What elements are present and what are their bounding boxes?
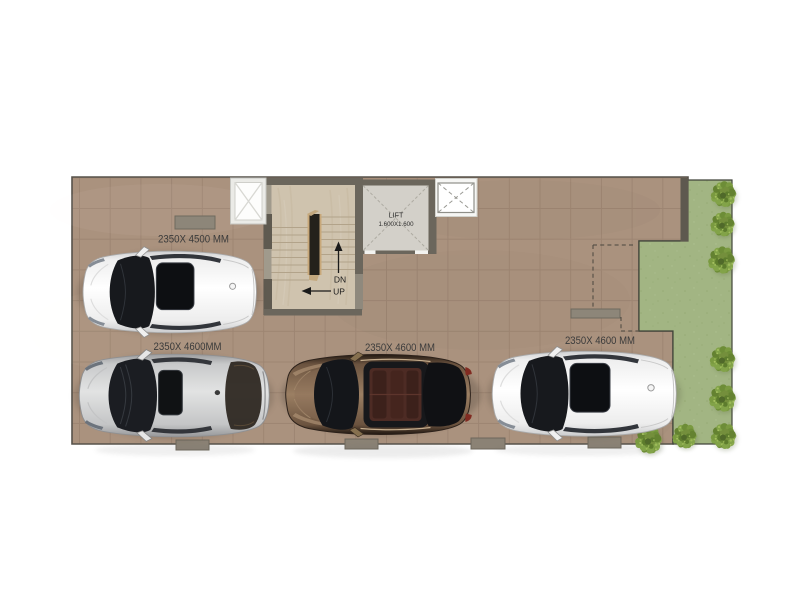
svg-text:1.600X1.600: 1.600X1.600 bbox=[379, 221, 414, 228]
svg-text:DN: DN bbox=[334, 275, 346, 285]
svg-text:UP: UP bbox=[333, 287, 345, 297]
svg-text:2350X 4600MM: 2350X 4600MM bbox=[154, 341, 222, 353]
svg-text:2350X 4500 MM: 2350X 4500 MM bbox=[158, 234, 229, 246]
svg-text:2350X 4600 MM: 2350X 4600 MM bbox=[365, 342, 435, 354]
svg-text:LIFT: LIFT bbox=[389, 213, 404, 220]
svg-text:2350X 4600 MM: 2350X 4600 MM bbox=[565, 335, 635, 347]
